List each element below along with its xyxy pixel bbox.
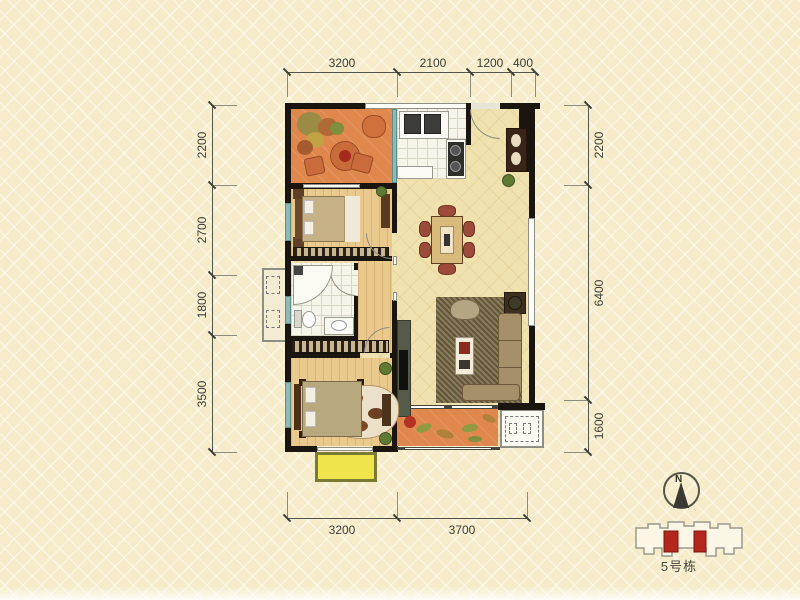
dim-left-3: 1800 xyxy=(196,292,208,319)
laundry-equipment-outline xyxy=(266,276,280,294)
dim-right-2: 6400 xyxy=(593,280,605,307)
dim-ext xyxy=(397,74,398,97)
toilet xyxy=(302,311,316,328)
bottom-fade xyxy=(0,586,800,600)
dim-ext xyxy=(535,74,536,97)
window-living xyxy=(528,218,535,326)
floorplan-scene: 3200 2100 1200 400 2200 2700 1800 3500 2… xyxy=(0,0,800,600)
dim-ext xyxy=(397,492,398,517)
dining-chair xyxy=(419,221,431,237)
dim-left-2: 2700 xyxy=(196,217,208,244)
building-outline xyxy=(636,522,742,556)
dresser xyxy=(382,394,391,426)
sliding-door-glass xyxy=(408,406,444,408)
bay-window xyxy=(315,452,377,482)
table-centerpiece xyxy=(444,234,450,246)
pillow xyxy=(304,221,314,235)
cabinet-decor xyxy=(511,134,521,147)
dim-ext xyxy=(214,275,237,276)
door-frame xyxy=(393,292,397,301)
cabinet-decor xyxy=(511,152,521,165)
wall xyxy=(392,183,397,233)
balcony-table-decor xyxy=(339,150,351,162)
plant xyxy=(376,186,387,197)
window-bathroom xyxy=(285,296,291,324)
dresser xyxy=(381,194,390,228)
dim-ext xyxy=(511,74,512,97)
dim-ext xyxy=(564,105,587,106)
dim-bottom-2: 3700 xyxy=(432,524,492,536)
sofa-cushion-line xyxy=(498,340,522,341)
window-balcony-bedroom2 xyxy=(303,184,360,188)
wall xyxy=(285,241,291,268)
tv xyxy=(399,350,408,390)
flower-decor xyxy=(404,416,416,428)
bed-sheet xyxy=(344,196,360,242)
wall xyxy=(354,263,358,270)
plant-cluster xyxy=(297,140,313,155)
dim-top-4: 400 xyxy=(503,57,543,69)
wall xyxy=(529,103,535,218)
plant xyxy=(508,296,522,310)
wall xyxy=(285,446,317,452)
sofa-cushion-line xyxy=(498,367,522,368)
dim-ext xyxy=(470,74,471,97)
kitchen-counter xyxy=(397,166,433,179)
ac-unit-outline xyxy=(509,423,517,434)
window-north xyxy=(365,103,470,109)
dim-ext xyxy=(214,185,237,186)
dim-ext xyxy=(287,492,288,517)
site-plan-icon xyxy=(630,518,748,560)
balcony-stool xyxy=(303,155,325,177)
wall xyxy=(285,103,365,109)
leaf-decor xyxy=(468,436,482,442)
dim-ext xyxy=(564,452,587,453)
dim-bottom-1: 3200 xyxy=(312,524,372,536)
door-frame xyxy=(393,256,397,265)
laundry-equipment-outline xyxy=(266,310,280,328)
dining-chair xyxy=(438,263,456,275)
dim-ext xyxy=(564,400,587,401)
dim-line-top xyxy=(287,72,535,73)
dim-top-1: 3200 xyxy=(312,57,372,69)
bed-headboard xyxy=(295,199,302,239)
dim-ext xyxy=(564,185,587,186)
sliding-door-glass xyxy=(452,406,492,408)
balcony-chair xyxy=(362,115,386,138)
plant-cluster xyxy=(330,122,344,135)
plant xyxy=(379,432,392,445)
compass-north-icon xyxy=(673,482,689,508)
dining-chair xyxy=(419,242,431,258)
pillow xyxy=(305,387,316,403)
bed-headboard xyxy=(294,384,301,430)
dim-line-bottom xyxy=(287,518,527,519)
plant xyxy=(379,362,392,375)
sofa-chaise xyxy=(462,384,520,401)
dim-left-4: 3500 xyxy=(196,381,208,408)
sink-basin xyxy=(424,114,441,134)
highlighted-unit xyxy=(694,531,706,552)
window-bedroom2 xyxy=(285,203,291,241)
dim-ext xyxy=(214,105,237,106)
dim-ext xyxy=(214,452,237,453)
stove-burner xyxy=(450,161,461,172)
ac-unit-outline xyxy=(523,423,531,434)
pillow xyxy=(305,411,316,427)
dim-right-3: 1600 xyxy=(593,413,605,440)
coffee-table-tray xyxy=(459,342,470,354)
highlighted-unit xyxy=(664,531,678,552)
dim-line-left xyxy=(212,105,213,452)
building-label: 5号栋 xyxy=(629,556,729,575)
wall xyxy=(498,403,545,410)
coffee-table-decor xyxy=(459,360,470,369)
bay-window-opening xyxy=(317,447,373,451)
dim-left-1: 2200 xyxy=(196,132,208,159)
wall xyxy=(285,268,291,296)
wall xyxy=(291,353,360,358)
dim-top-2: 2100 xyxy=(403,57,463,69)
stove-burner xyxy=(450,145,461,156)
dining-chair xyxy=(463,221,475,237)
sofa xyxy=(498,313,522,395)
wall xyxy=(529,326,535,405)
shower-head xyxy=(294,266,303,275)
dining-chair xyxy=(463,242,475,258)
dim-ext xyxy=(214,335,237,336)
dim-ext xyxy=(287,74,288,97)
toilet-tank xyxy=(294,310,302,328)
armchair xyxy=(450,299,480,320)
dim-ext xyxy=(527,492,528,517)
sink xyxy=(331,320,347,331)
balcony-railing-glass xyxy=(405,448,491,449)
window-bedroom1 xyxy=(285,382,291,428)
wall xyxy=(354,296,358,336)
sink-basin xyxy=(404,114,421,134)
pillow xyxy=(304,200,314,214)
plant xyxy=(502,174,515,187)
dim-right-1: 2200 xyxy=(593,132,605,159)
